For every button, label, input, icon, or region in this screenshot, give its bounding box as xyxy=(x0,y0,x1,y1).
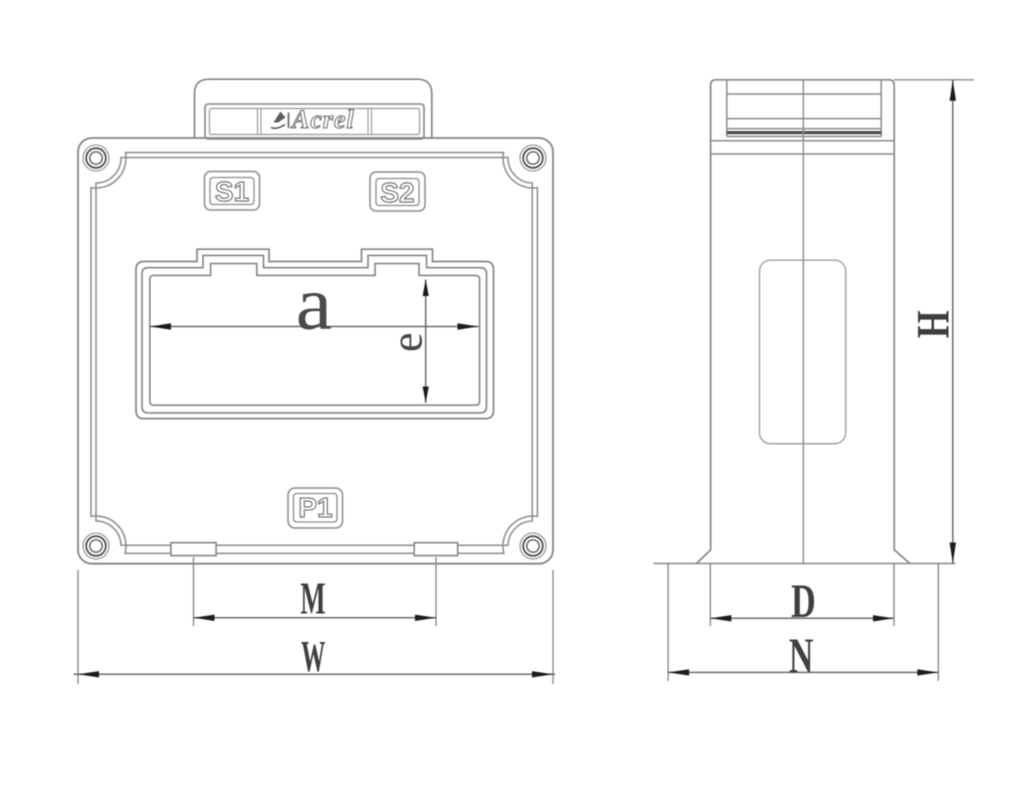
svg-text:N: N xyxy=(789,629,814,684)
svg-text:P1: P1 xyxy=(298,492,332,523)
svg-text:a: a xyxy=(296,263,332,347)
svg-text:S2: S2 xyxy=(380,177,414,208)
svg-text:W: W xyxy=(301,631,325,681)
svg-text:S1: S1 xyxy=(215,176,249,207)
svg-text:Acrel: Acrel xyxy=(290,105,355,134)
svg-text:H: H xyxy=(908,311,960,339)
svg-text:M: M xyxy=(300,573,325,624)
svg-text:e: e xyxy=(383,332,432,352)
svg-text:D: D xyxy=(791,575,816,628)
